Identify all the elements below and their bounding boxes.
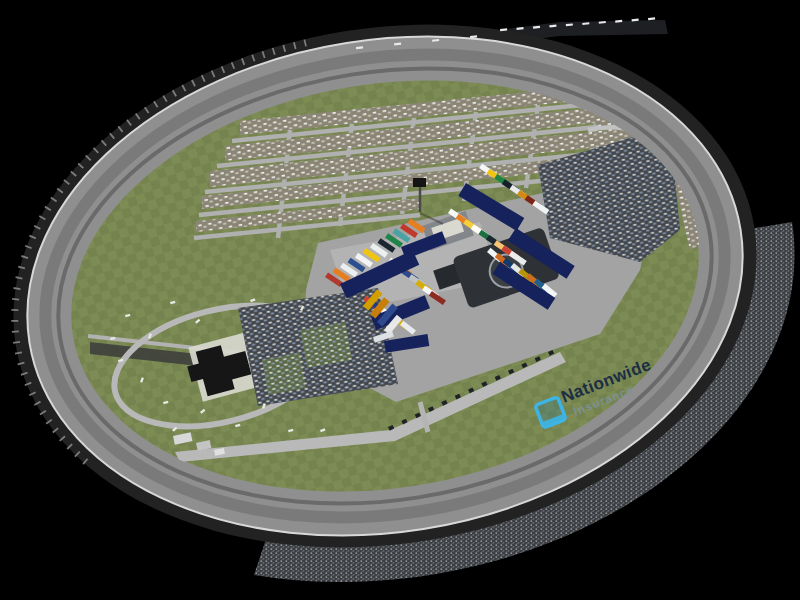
speedway-aerial-scene: Nationwide Insurance [0,0,800,600]
